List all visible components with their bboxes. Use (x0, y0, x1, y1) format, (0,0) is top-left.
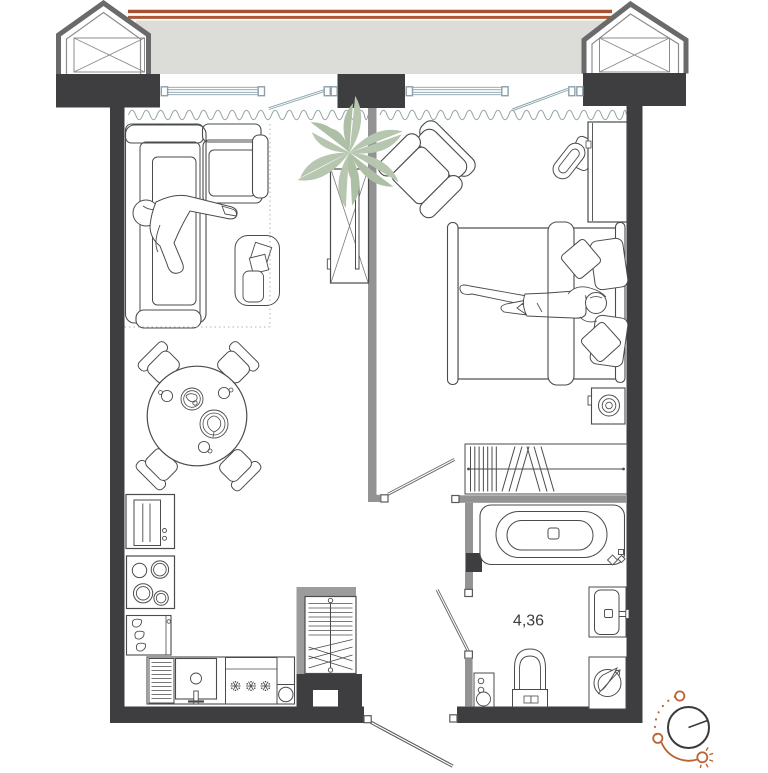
svg-text:4,36: 4,36 (513, 613, 544, 630)
